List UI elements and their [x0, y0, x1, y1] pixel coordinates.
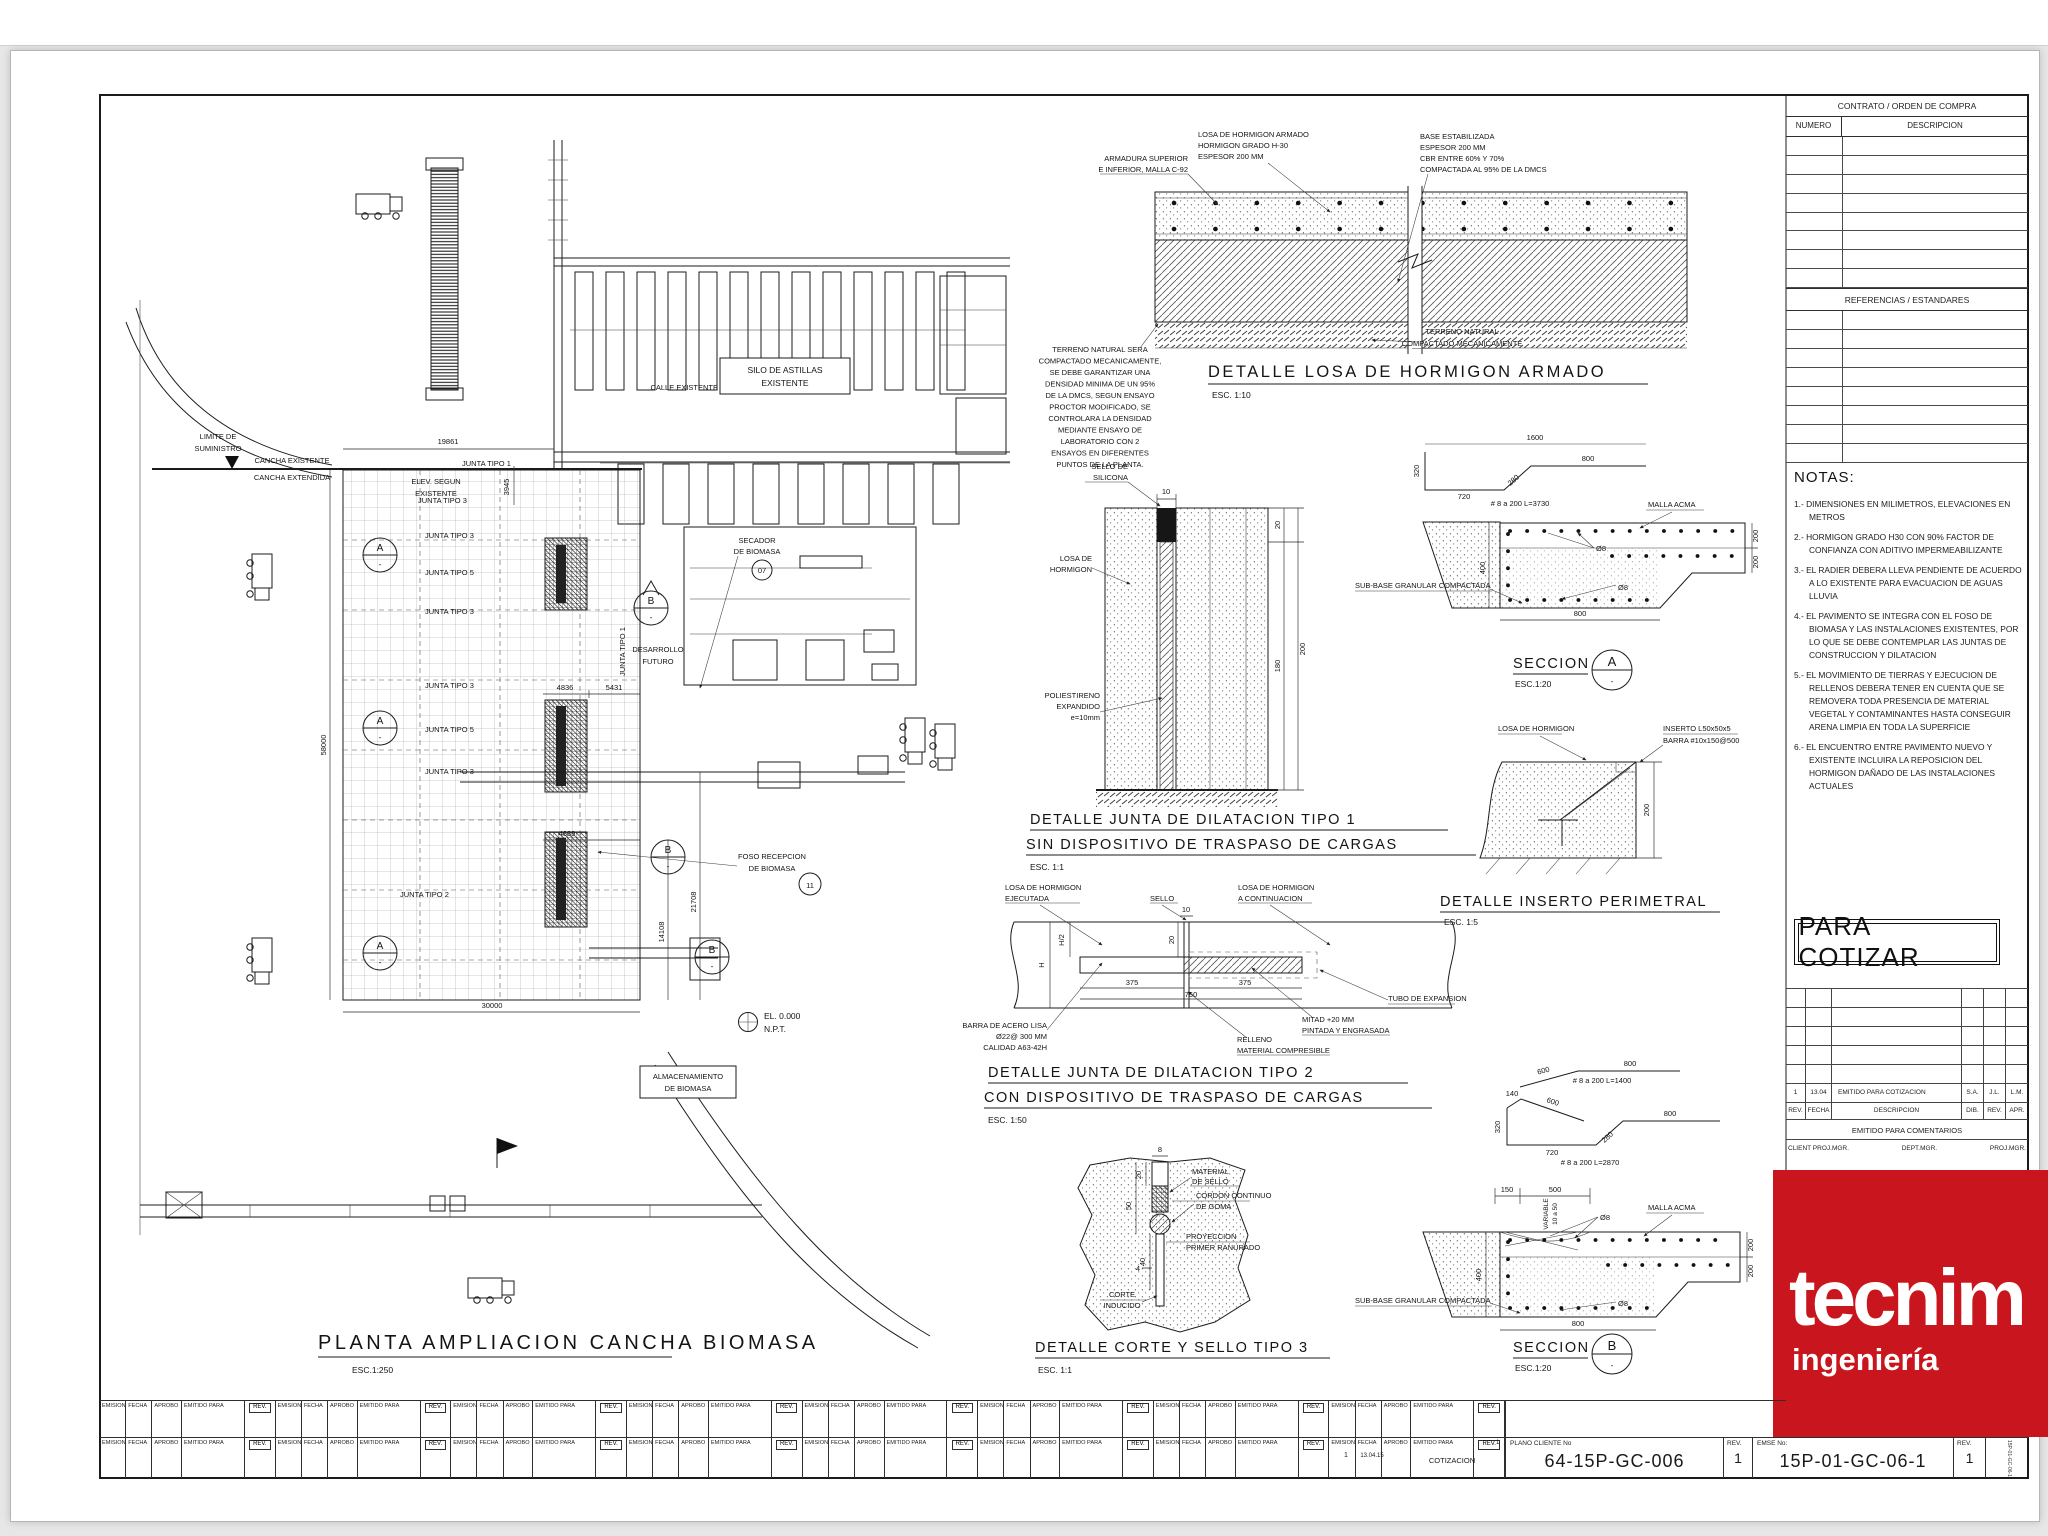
section-marker-dash: - — [379, 957, 382, 967]
poliestireno-label: POLIESTIRENO — [1045, 691, 1101, 700]
rev-header-cell: REV. — [772, 1438, 802, 1478]
rev-header: REV. — [600, 1440, 621, 1450]
references-empty-row — [1786, 311, 2028, 330]
references-divider — [1842, 311, 1843, 463]
footer-row-top: EMISION FECHA APROBO EMITIDO PARA REV. E… — [100, 1400, 1505, 1437]
fecha-header: FECHA — [1356, 1401, 1382, 1437]
revision-empty-row — [1786, 1027, 2028, 1046]
footer-rev-block: EMISION FECHA APROBO EMITIDO PARA REV. — [803, 1401, 979, 1437]
emitido-para-header: EMITIDO PARA — [358, 1438, 421, 1478]
dim-200: 200 — [1642, 804, 1651, 817]
fecha-header: FECHA — [1004, 1438, 1030, 1478]
plan-title: PLANTA AMPLIACION CANCHA BIOMASA — [318, 1332, 819, 1354]
terreno-note: COMPACTADO MECANICAMENTE, — [1039, 357, 1162, 366]
footer-empty-cell — [1505, 1400, 1786, 1437]
dim-20: 20 — [1167, 936, 1176, 944]
junta-label: JUNTA TIPO 3 — [425, 681, 474, 690]
dim-750: 750 — [1185, 990, 1198, 999]
note-item: 2.- HORMIGON GRADO H30 CON 90% FACTOR DE… — [1794, 531, 2024, 557]
rev-header: REV. — [952, 1403, 973, 1413]
desarrollo-label: DESARROLLO — [632, 645, 683, 654]
detail-tipo1-scale: ESC. 1:1 — [1030, 862, 1064, 872]
footer-rev-block: EMISION FECHA APROBO EMITIDO PARA REV. — [1154, 1438, 1330, 1478]
rebar-callout: Ø8 — [1600, 1213, 1610, 1222]
rebar-dim: 800 — [1582, 454, 1595, 463]
dim-variable: 10 a 50 — [1552, 1203, 1559, 1225]
cell — [1984, 1027, 2006, 1045]
references-empty-row — [1786, 387, 2028, 406]
rev-apr-value: L.M. — [2006, 1084, 2028, 1096]
footer-rev-block: EMISION FECHA APROBO EMITIDO PARA REV. — [1329, 1401, 1505, 1437]
terreno-note: TERRENO NATURAL SERA — [1052, 345, 1147, 354]
proyeccion-label: PRIMER RANURADO — [1186, 1243, 1260, 1252]
cell — [2006, 1008, 2028, 1026]
aprobo-header: APROBO — [1382, 1401, 1412, 1437]
rebar-dim: 800 — [1624, 1059, 1637, 1068]
losa-callout: ESPESOR 200 MM — [1198, 152, 1263, 161]
emse-number: 15P-01-GC-06-1 — [1753, 1451, 1953, 1472]
col-descripcion-label: DESCRIPCION — [1832, 1103, 1961, 1114]
junta-label: JUNTA TIPO 1 — [462, 459, 511, 468]
rev-description: EMITIDO PARA COTIZACION — [1832, 1084, 1962, 1102]
tubo-label: TUBO DE EXPANSION — [1388, 994, 1467, 1003]
rev-header: REV. — [1478, 1403, 1499, 1413]
dim-400: 400 — [1478, 562, 1487, 575]
references-empty-row — [1786, 368, 2028, 387]
losa-continuacion-label: LOSA DE HORMIGON — [1238, 883, 1314, 892]
section-b-scale: ESC.1:20 — [1515, 1363, 1552, 1373]
drawing-viewer: LIMITE DE SUMINISTRO CANCHA EXISTENTE CA… — [0, 0, 2048, 1536]
references-empty-row — [1786, 444, 2028, 463]
fecha-header: FECHA — [653, 1438, 679, 1478]
revision-header-row: REV. FECHA DESCRIPCION DIB. REV. APR. — [1786, 1103, 2028, 1120]
subbase-label: SUB-BASE GRANULAR COMPACTADA — [1355, 581, 1491, 590]
rebar-bend-b: 600 800 # 8 a 200 L=1400 140 600 320 720… — [1493, 1059, 1720, 1167]
cell — [1832, 1008, 1962, 1026]
emision-header: EMISION — [803, 1401, 829, 1437]
junta-label: JUNTA TIPO 5 — [425, 725, 474, 734]
note-item: 5.- EL MOVIMIENTO DE TIERRAS Y EJECUCION… — [1794, 669, 2024, 734]
terreno-note: MEDIANTE ENSAYO DE — [1058, 426, 1142, 435]
aprobo-header: APROBO — [1031, 1401, 1061, 1437]
junta-label: JUNTA TIPO 2 — [400, 890, 449, 899]
col-fecha-label: FECHA — [1806, 1103, 1831, 1114]
detail-losa: ARMADURA SUPERIOR E INFERIOR, MALLA C-92… — [1039, 130, 1687, 469]
cell — [1832, 1046, 1962, 1064]
rev-header-cell: REV. — [421, 1438, 451, 1478]
aprobo-header: APROBO — [152, 1438, 182, 1478]
dim-5431: 5431 — [606, 683, 623, 692]
base-callout: COMPACTADA AL 95% DE LA DMCS — [1420, 165, 1547, 174]
armadura-label: E INFERIOR, MALLA C-92 — [1098, 165, 1188, 174]
rebar-dim: 280 — [1506, 473, 1521, 488]
cell — [1806, 989, 1832, 1007]
note-item: 1.- DIMENSIONES EN MILIMETROS, ELEVACION… — [1794, 498, 2024, 524]
cell — [1962, 1027, 1984, 1045]
revision-empty-row — [1786, 1046, 2028, 1065]
terreno-callout: COMPACTADO MECANICAMENTE — [1402, 339, 1523, 348]
section-marker-dash: - — [667, 861, 670, 871]
cordon-label: CORDON CONTINUO — [1196, 1191, 1272, 1200]
cell — [1786, 1065, 1806, 1083]
detail-tipo1-title: DETALLE JUNTA DE DILATACION TIPO 1 — [1030, 812, 1356, 828]
references-empty-row — [1786, 425, 2028, 444]
rev-dib: S.A. — [1962, 1084, 1984, 1102]
section-marker-dash: - — [379, 732, 382, 742]
contract-empty-row — [1786, 231, 2028, 250]
section-marker-b: B — [709, 945, 716, 956]
section-marker-dash: - — [650, 612, 653, 622]
almacenamiento-label: DE BIOMASA — [665, 1084, 712, 1093]
losa-continuacion-label: A CONTINUACION — [1238, 894, 1303, 903]
plano-rev-cell: REV. 1 — [1723, 1437, 1752, 1478]
cordon-label: DE GOMA — [1196, 1202, 1231, 1211]
emision-header: EMISION — [100, 1438, 126, 1478]
dim-h2: H/2 — [1057, 934, 1066, 946]
mitad-label: MITAD +20 MM — [1302, 1015, 1354, 1024]
contract-empty-row — [1786, 156, 2028, 175]
section-marker-a: A — [377, 716, 384, 727]
losa-label: HORMIGON — [1050, 565, 1092, 574]
rev-label: REV. — [1957, 1440, 1972, 1447]
footer-rev-block: EMISION FECHA APROBO EMITIDO PARA REV. — [978, 1438, 1154, 1478]
secador-label: DE BIOMASA — [734, 547, 781, 556]
dim-800: 800 — [1572, 1319, 1585, 1328]
corte-label: CORTE — [1109, 1290, 1135, 1299]
contract-col-descripcion: DESCRIPCION — [1842, 117, 2028, 136]
footer-rev-block: EMISION FECHA APROBO EMITIDO PARA REV. — [803, 1438, 979, 1478]
footer-rev-block: EMISION FECHA APROBO EMITIDO PARA REV. — [451, 1401, 627, 1437]
col-rev: REV. — [1786, 1103, 1806, 1119]
note-item: 6.- EL ENCUENTRO ENTRE PAVIMENTO NUEVO Y… — [1794, 741, 2024, 793]
col-descripcion: DESCRIPCION — [1832, 1103, 1962, 1119]
losa-ejecutada-label: LOSA DE HORMIGON — [1005, 883, 1081, 892]
dim-30000: 30000 — [482, 1001, 503, 1010]
footer-rev-block: EMISION FECHA APROBO EMITIDO PARA REV. — [276, 1401, 452, 1437]
limite-label: LIMITE DE — [200, 432, 237, 441]
terreno-note: CONTROLARA LA DENSIDAD — [1048, 414, 1152, 423]
plano-cliente-number: 64-15P-GC-006 — [1506, 1451, 1723, 1472]
rebar-dim: 720 — [1546, 1148, 1559, 1157]
fecha-header: FECHA — [1004, 1401, 1030, 1437]
note-item: 4.- EL PAVIMENTO SE INTEGRA CON EL FOSO … — [1794, 610, 2024, 662]
rebar-dim: 720 — [1458, 492, 1471, 501]
rev-header-cell: REV. — [596, 1401, 626, 1437]
rev-header: REV. — [1303, 1440, 1324, 1450]
col-apr-label: APR. — [2006, 1103, 2028, 1114]
emitido-value: COTIZACION — [1408, 1456, 1496, 1465]
material-label: MATERIAL — [1192, 1167, 1229, 1176]
revision-empty-row — [1786, 1008, 2028, 1027]
signers-row: CLIENT PROJ.MGR. DEPT.MGR. PROJ.MGR. — [1786, 1140, 2028, 1152]
aprobo-header: APROBO — [855, 1438, 885, 1478]
terreno-note: PROCTOR MODIFICADO, SE — [1049, 403, 1151, 412]
rebar-dim: 600 — [1545, 1095, 1560, 1108]
dim-58000: 58000 — [319, 735, 328, 756]
dim-400: 400 — [1474, 1269, 1483, 1282]
cell — [1832, 989, 1962, 1007]
section-a-title: SECCION — [1513, 656, 1590, 672]
contract-empty-row — [1786, 137, 2028, 156]
dim-50: 50 — [1124, 1202, 1133, 1210]
fecha-header: FECHA — [1180, 1401, 1206, 1437]
base-callout: ESPESOR 200 MM — [1420, 143, 1485, 152]
malla-label: MALLA ACMA — [1648, 1203, 1696, 1212]
references-empty-row — [1786, 349, 2028, 368]
terreno-note: DE LA DMCS, SEGUN ENSAYO — [1045, 391, 1154, 400]
dim-19861: 19861 — [438, 437, 459, 446]
aprobo-header: APROBO — [679, 1438, 709, 1478]
emitido-para-header: EMITIDO PARA — [1236, 1438, 1299, 1478]
rev-rev: J.L. — [1984, 1084, 2006, 1102]
emision-header: EMISION — [100, 1401, 126, 1437]
dim-150: 150 — [1501, 1185, 1514, 1194]
note-item: 3.- EL RADIER DEBERA LLEVA PENDIENTE DE … — [1794, 564, 2024, 603]
aprobo-header: APROBO — [504, 1438, 534, 1478]
cell — [2006, 1046, 2028, 1064]
dim-4: 4 — [1136, 1264, 1140, 1273]
references-header: REFERENCIAS / ESTANDARES — [1786, 288, 2028, 311]
fecha-header: FECHA — [302, 1401, 328, 1437]
rebar-spec: # 8 a 200 L=2870 — [1561, 1158, 1620, 1167]
cell — [2006, 1027, 2028, 1045]
cancha-existente-label: CANCHA EXISTENTE — [254, 456, 329, 465]
drawing-canvas: LIMITE DE SUMINISTRO CANCHA EXISTENTE CA… — [0, 0, 2048, 1536]
rev-header: REV. — [1303, 1403, 1324, 1413]
plano-cliente-label: PLANO CLIENTE No — [1510, 1440, 1571, 1447]
section-a: MALLA ACMA Ø8 Ø8 SUB-BASE GRANULAR COMPA… — [1355, 500, 1760, 690]
emision-header: EMISION — [1329, 1401, 1355, 1437]
dim-variable: VARIABLE — [1543, 1198, 1550, 1230]
rev-header: REV. — [776, 1440, 797, 1450]
rev-rev-value: J.L. — [1984, 1084, 2005, 1096]
cell — [1962, 989, 1984, 1007]
cell — [1984, 1046, 2006, 1064]
col-apr: APR. — [2006, 1103, 2028, 1119]
col-dib-label: DIB. — [1962, 1103, 1983, 1114]
rev-label: REV. — [1727, 1440, 1742, 1447]
rev-header-cell: REV. — [947, 1438, 977, 1478]
emse-block: EMSE No: 15P-01-GC-06-1 — [1752, 1437, 1953, 1478]
plan-scale: ESC.1:250 — [352, 1365, 393, 1375]
emitido-para-header: EMITIDO PARA — [182, 1401, 245, 1437]
material-label: DE SELLO — [1192, 1177, 1229, 1186]
rev-header-cell: REV. — [245, 1401, 275, 1437]
emitido-para-comentarios: EMITIDO PARA COMENTARIOS — [1786, 1120, 2028, 1140]
dim-21708: 21708 — [689, 892, 698, 913]
emision-header: EMISION — [627, 1401, 653, 1437]
para-cotizar-stamp: PARA COTIZAR — [1794, 919, 2000, 965]
silo-label: EXISTENTE — [761, 378, 809, 388]
logo-tagline: ingeniería — [1792, 1342, 2048, 1378]
section-a-scale: ESC.1:20 — [1515, 679, 1552, 689]
rebar-dim: 280 — [1600, 1130, 1615, 1145]
col-rev-label: REV. — [1786, 1103, 1805, 1114]
aprobo-header: APROBO — [328, 1401, 358, 1437]
cell — [1962, 1008, 1984, 1026]
cell — [2006, 1065, 2028, 1083]
rev-header-cell: REV. — [1474, 1401, 1504, 1437]
junta-label: JUNTA TIPO 3 — [418, 496, 467, 505]
rebar-dim: 600 — [1536, 1065, 1550, 1077]
fecha-header: FECHA — [477, 1401, 503, 1437]
base-callout: CBR ENTRE 60% Y 70% — [1420, 154, 1505, 163]
plan-linework — [126, 140, 1010, 1357]
elevation-label: N.P.T. — [764, 1024, 786, 1034]
dim-10: 10 — [1162, 487, 1170, 496]
rebar-dim: 320 — [1412, 465, 1421, 478]
fecha-header: FECHA — [126, 1401, 152, 1437]
emision-header: EMISION — [451, 1401, 477, 1437]
section-marker-dash: - — [711, 961, 714, 971]
malla-label: MALLA ACMA — [1648, 500, 1696, 509]
dim-3945: 3945 — [502, 479, 511, 496]
emitido-para-header: EMITIDO PARA — [885, 1438, 948, 1478]
cell — [1832, 1027, 1962, 1045]
section-a-mark: A — [1608, 654, 1617, 669]
contract-empty-row — [1786, 213, 2028, 232]
mitad-label: PINTADA Y ENGRASADA — [1302, 1026, 1390, 1035]
detail-tipo1: SELLO DE SILICONA 10 LOSA DE HORMIGON PO… — [1026, 462, 1476, 872]
emitido-para-header: EMITIDO PARA — [533, 1401, 596, 1437]
notes-section: NOTAS: 1.- DIMENSIONES EN MILIMETROS, EL… — [1794, 469, 2024, 800]
foso-label: DE BIOMASA — [749, 864, 796, 873]
elevation-label: EL. 0.000 — [764, 1011, 801, 1021]
footer-rev-block: EMISION FECHA APROBO EMITIDO PARA REV. — [451, 1438, 627, 1478]
footer-rev-block: EMISION FECHA APROBO EMITIDO PARA REV. — [978, 1401, 1154, 1437]
cell — [1786, 989, 1806, 1007]
corte-label: INDUCIDO — [1103, 1301, 1140, 1310]
base-callout: BASE ESTABILIZADA — [1420, 132, 1494, 141]
rev-header-cell: REV. — [1299, 1438, 1329, 1478]
dim-20: 20 — [1273, 521, 1282, 529]
terreno-note: DENSIDAD MINIMA DE UN 95% — [1045, 380, 1155, 389]
rebar-spec: # 8 a 200 L=1400 — [1573, 1076, 1632, 1085]
rev-number: 1 — [1786, 1084, 1806, 1102]
revision-empty-row — [1786, 1065, 2028, 1084]
emision-header: EMISION — [978, 1438, 1004, 1478]
references-empty-row — [1786, 406, 2028, 425]
secador-number: 07 — [758, 566, 766, 575]
dim-8: 8 — [1158, 1145, 1162, 1154]
dim-200: 200 — [1746, 1265, 1755, 1278]
rev-header: REV. — [1127, 1440, 1148, 1450]
emitido-para-header: EMITIDO PARA — [182, 1438, 245, 1478]
section-b-mark: B — [1608, 1338, 1617, 1353]
cell — [1984, 1008, 2006, 1026]
notes-title: NOTAS: — [1794, 469, 2024, 486]
logo-brand: tecnim — [1789, 1258, 2048, 1338]
dim-375: 375 — [1239, 978, 1252, 987]
rev-header: REV. — [249, 1403, 270, 1413]
footer-rev-block: EMISION FECHA APROBO EMITIDO PARA REV. — [100, 1401, 276, 1437]
footer-rev-block: EMISION FECHA APROBO EMITIDO PARA REV. — [627, 1401, 803, 1437]
junta-label: JUNTA TIPO 3 — [425, 767, 474, 776]
detail-tipo2-scale: ESC. 1:50 — [988, 1115, 1027, 1125]
cell — [1806, 1046, 1832, 1064]
losa-label: LOSA DE HORMIGON — [1498, 724, 1574, 733]
rev-apr: L.M. — [2006, 1084, 2028, 1102]
plano-rev-value: 1 — [1724, 1450, 1752, 1466]
terreno-note: LABORATORIO CON 2 — [1061, 437, 1140, 446]
rev-header: REV. — [249, 1440, 270, 1450]
aprobo-header: APROBO — [1031, 1438, 1061, 1478]
fecha-header: FECHA — [829, 1401, 855, 1437]
rebar-dim: 800 — [1664, 1109, 1677, 1118]
barra-label: BARRA DE ACERO LISA — [962, 1021, 1047, 1030]
desarrollo-label: FUTURO — [642, 657, 673, 666]
losa-callout: HORMIGON GRADO H-30 — [1198, 141, 1288, 150]
emse-rev-cell: REV. 1 — [1953, 1437, 1985, 1478]
rev-header-cell: REV. — [947, 1401, 977, 1437]
emision-header: EMISION — [1154, 1438, 1180, 1478]
contract-empty-row — [1786, 175, 2028, 194]
barra-label: CALIDAD A63-42H — [983, 1043, 1047, 1052]
emitido-para-header: EMITIDO PARA — [1060, 1401, 1123, 1437]
detail-tipo2: LOSA DE HORMIGON EJECUTADA SELLO LOSA DE… — [962, 883, 1466, 1125]
rebar-callout: Ø8 — [1618, 1299, 1628, 1308]
company-logo: tecnim ingeniería — [1773, 1170, 2048, 1437]
emse-label: EMSE No: — [1757, 1440, 1787, 1447]
cell — [1786, 1046, 1806, 1064]
cancha-extendida-label: CANCHA EXTENDIDA — [254, 473, 330, 482]
rev-header: REV. — [425, 1440, 446, 1450]
rebar-spec: # 8 a 200 L=3730 — [1491, 499, 1550, 508]
inserto-label: BARRA #10x150@500 — [1663, 736, 1739, 745]
emision-header: EMISION — [978, 1401, 1004, 1437]
rebar-dim: 140 — [1506, 1089, 1519, 1098]
junta-label: JUNTA TIPO 3 — [425, 531, 474, 540]
inserto-label: INSERTO L50x50x5 — [1663, 724, 1731, 733]
rev-date: 13.04 — [1806, 1084, 1832, 1102]
references-empty-row — [1786, 330, 2028, 349]
emitido-para-header: EMITIDO PARA — [1411, 1401, 1474, 1437]
rev-header: REV. — [425, 1403, 446, 1413]
rebar-callout: Ø8 — [1618, 583, 1628, 592]
cell — [1984, 989, 2006, 1007]
dim-500: 500 — [1549, 1185, 1562, 1194]
aprobo-header: APROBO — [679, 1401, 709, 1437]
section-marker-a: A — [377, 941, 384, 952]
section-marker-b: B — [665, 845, 672, 856]
emision-header: EMISION — [1154, 1401, 1180, 1437]
dim-200: 200 — [1298, 643, 1307, 656]
revision-table: 1 13.04 EMITIDO PARA COTIZACION S.A. J.L… — [1786, 988, 2028, 1152]
emision-header: EMISION — [276, 1401, 302, 1437]
cell — [1806, 1065, 1832, 1083]
rev-header: REV. — [600, 1403, 621, 1413]
detail-tipo1-title: SIN DISPOSITIVO DE TRASPASO DE CARGAS — [1026, 837, 1398, 853]
contract-col-numero: NUMERO — [1786, 117, 1842, 136]
fecha-header: FECHA — [126, 1438, 152, 1478]
aprobo-header: APROBO — [1206, 1438, 1236, 1478]
references-table: REFERENCIAS / ESTANDARES — [1786, 288, 2028, 463]
detail-tipo3-scale: ESC. 1:1 — [1038, 1365, 1072, 1375]
secador-label: SECADOR — [738, 536, 776, 545]
foso-number: 11 — [806, 881, 814, 890]
footer-rev-block: EMISION FECHA APROBO EMITIDO PARA REV. — [1154, 1401, 1330, 1437]
aprobo-header: APROBO — [504, 1401, 534, 1437]
stamp-text: PARA COTIZAR — [1798, 923, 1997, 962]
foso-label: FOSO RECEPCION — [738, 852, 806, 861]
footer-rev-block: EMISION FECHA APROBO EMITIDO PARA REV. — [100, 1438, 276, 1478]
cell — [1806, 1008, 1832, 1026]
silo-label: SILO DE ASTILLAS — [747, 365, 822, 375]
rev-header-cell: REV. — [245, 1438, 275, 1478]
rebar-dim: 320 — [1493, 1121, 1502, 1134]
cell — [1806, 1027, 1832, 1045]
dim-20: 20 — [1134, 1171, 1143, 1179]
